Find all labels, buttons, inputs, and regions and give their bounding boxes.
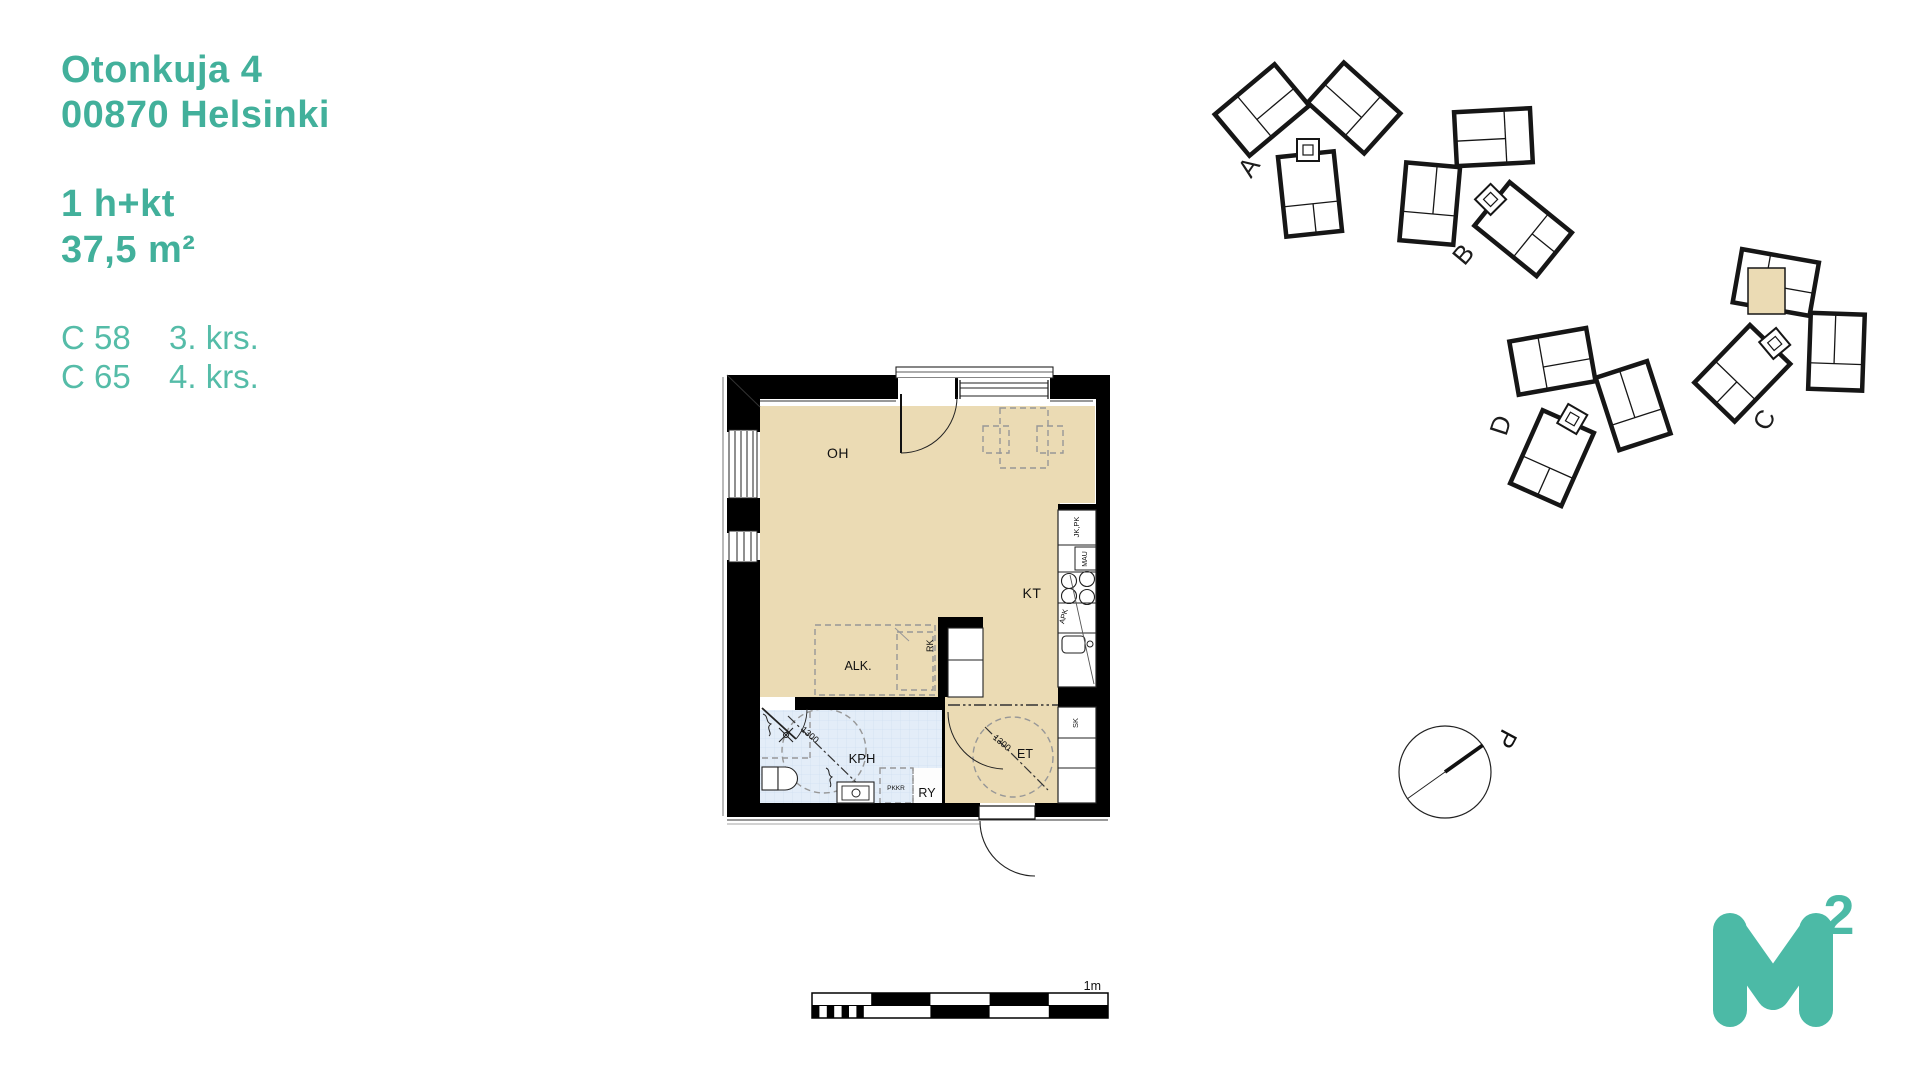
entrance-door-swing <box>980 821 1035 876</box>
room-label-alcove: ALK. <box>844 659 871 673</box>
building-label-d: D <box>1483 412 1517 439</box>
kitchen-fixtures <box>1058 510 1096 803</box>
fixture-label-oven: MAU <box>1082 551 1089 567</box>
entrance-door-slab <box>979 806 1035 819</box>
fixture-label-laundry: PKKR <box>887 785 905 792</box>
north-indicator: P <box>1380 698 1580 862</box>
fixture-label-fridge: JK,PK <box>1072 517 1081 538</box>
north-arrow <box>1445 745 1483 772</box>
unit-list: C 583. krs. C 654. krs. <box>61 318 259 396</box>
compass-label: P <box>1490 725 1523 753</box>
distribution-cabinet-box <box>948 628 983 697</box>
scale-bar-label: 1m <box>1084 979 1101 993</box>
window <box>729 531 757 562</box>
window <box>729 430 757 498</box>
unit-row: C 654. krs. <box>61 357 259 396</box>
unit-floor: 3. krs. <box>169 319 259 356</box>
room-label-kitchen: KT <box>1023 585 1042 601</box>
m2-logo: 2 <box>1690 870 1890 1050</box>
apartment-area: 37,5 m² <box>61 227 195 273</box>
building-outline-c <box>1648 216 1901 470</box>
toilet <box>762 767 778 790</box>
logo-exponent: 2 <box>1823 883 1854 946</box>
unit-number: C 58 <box>61 318 169 357</box>
apartment-info-block: 1 h+kt 37,5 m² <box>61 181 195 273</box>
building-label-c: C <box>1746 404 1781 435</box>
toilet-bowl <box>778 767 798 790</box>
address-street: Otonkuja 4 <box>61 48 330 93</box>
unit-floor: 4. krs. <box>169 358 259 395</box>
unit-row: C 583. krs. <box>61 318 259 357</box>
highlighted-unit <box>1748 268 1785 314</box>
room-label-hall: ET <box>1017 747 1033 761</box>
site-plan: A B C D <box>1180 20 1920 540</box>
fixture-label-rk: RK <box>925 639 935 652</box>
scale-bar: 1m <box>795 970 1125 1025</box>
address-city: 00870 Helsinki <box>61 93 330 138</box>
room-label-living: OH <box>827 445 849 461</box>
fixture-label-closet: SK <box>1071 718 1080 728</box>
floor-plan: OH KT ALK. KPH ET RY RK JK,PK MAU APK SK… <box>715 350 1135 890</box>
unit-number: C 65 <box>61 357 169 396</box>
room-label-bathroom: KPH <box>849 751 876 766</box>
building-outline-a <box>1215 63 1401 237</box>
room-label-utility: RY <box>918 786 936 800</box>
logo-m-icon <box>1730 930 1816 1010</box>
apartment-type: 1 h+kt <box>61 181 195 227</box>
scale-bar-segments <box>812 993 1108 1018</box>
building-outline-d <box>1448 297 1696 540</box>
building-outline-b <box>1363 72 1617 326</box>
address-block: Otonkuja 4 00870 Helsinki <box>61 48 330 138</box>
